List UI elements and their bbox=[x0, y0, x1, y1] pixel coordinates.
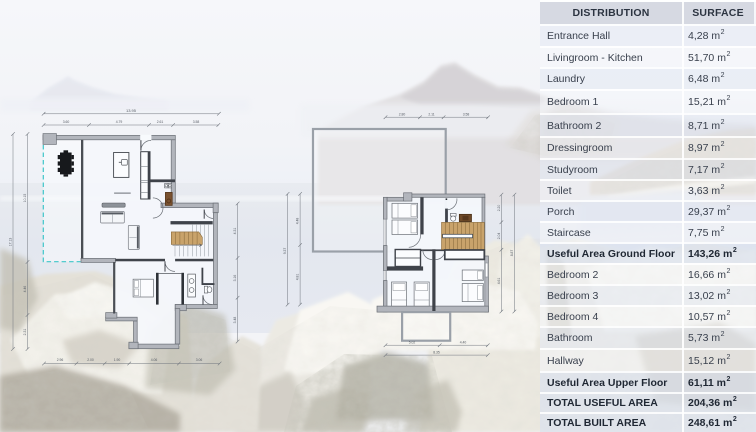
svg-text:2.80: 2.80 bbox=[399, 112, 406, 116]
svg-text:2.11: 2.11 bbox=[428, 112, 434, 116]
svg-text:4.40: 4.40 bbox=[460, 340, 467, 344]
svg-text:2.31: 2.31 bbox=[23, 329, 27, 336]
svg-text:3.06: 3.06 bbox=[196, 358, 203, 362]
svg-text:13.95: 13.95 bbox=[126, 108, 137, 113]
svg-text:1.90: 1.90 bbox=[114, 358, 121, 362]
svg-text:3.58: 3.58 bbox=[463, 112, 470, 116]
svg-text:4.48: 4.48 bbox=[296, 218, 300, 225]
svg-text:4.79: 4.79 bbox=[116, 120, 123, 124]
svg-text:10.15: 10.15 bbox=[23, 194, 27, 203]
svg-text:3.48: 3.48 bbox=[233, 317, 237, 324]
svg-text:4.31: 4.31 bbox=[233, 228, 237, 235]
svg-text:3.60: 3.60 bbox=[63, 120, 70, 124]
svg-text:17.13: 17.13 bbox=[9, 238, 13, 247]
svg-text:3.16: 3.16 bbox=[233, 275, 237, 282]
svg-text:2.61: 2.61 bbox=[157, 120, 164, 124]
svg-text:8.87: 8.87 bbox=[510, 250, 514, 257]
svg-text:4.61: 4.61 bbox=[497, 278, 501, 285]
svg-text:2.20: 2.20 bbox=[497, 205, 501, 212]
svg-text:2.96: 2.96 bbox=[57, 358, 64, 362]
svg-text:3.58: 3.58 bbox=[193, 120, 200, 124]
svg-text:5.02: 5.02 bbox=[409, 340, 416, 344]
svg-text:2.00: 2.00 bbox=[87, 358, 94, 362]
svg-text:8.35: 8.35 bbox=[433, 350, 440, 354]
svg-text:2.04: 2.04 bbox=[497, 233, 501, 240]
svg-text:9.37: 9.37 bbox=[283, 248, 287, 255]
svg-text:4.81: 4.81 bbox=[296, 274, 300, 281]
svg-text:4.46: 4.46 bbox=[23, 286, 27, 293]
svg-text:4.06: 4.06 bbox=[151, 358, 158, 362]
